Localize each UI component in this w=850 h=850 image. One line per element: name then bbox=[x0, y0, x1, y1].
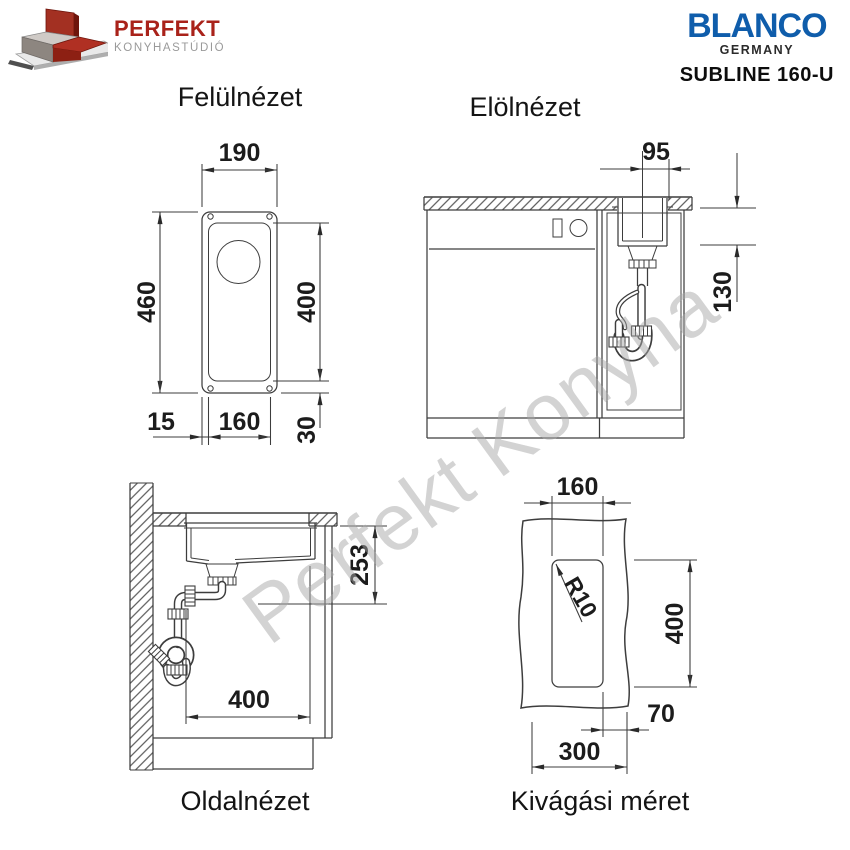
title-cutout-view: Kivágási méret bbox=[455, 786, 745, 817]
dim-label-outer-width: 190 bbox=[219, 139, 261, 167]
title-top-view: Felülnézet bbox=[120, 82, 360, 113]
sink-bowl-side bbox=[184, 523, 317, 585]
countertop-side bbox=[153, 513, 337, 526]
perfekt-logo: PERFEKT KONYHASTÚDIÓ bbox=[8, 4, 225, 70]
title-front-view: Elölnézet bbox=[405, 92, 645, 123]
spec-sheet: PERFEKT KONYHASTÚDIÓ BLANCO GERMANY SUBL… bbox=[0, 0, 850, 850]
dim-label-bowl-depth: 130 bbox=[709, 271, 737, 313]
dim-label-cutout-width: 160 bbox=[557, 473, 599, 501]
worktop-slab bbox=[519, 519, 629, 708]
perfekt-subtitle: KONYHASTÚDIÓ bbox=[114, 42, 225, 54]
dim-label-edge-margin: 15 bbox=[147, 408, 175, 436]
dim-label-side-bowl-length: 400 bbox=[228, 686, 270, 714]
cutout-view-drawing: R10 160 400 70 300 bbox=[460, 470, 710, 780]
dim-label-bowl-length: 400 bbox=[293, 281, 321, 323]
dim-label-end-margin: 30 bbox=[293, 416, 321, 444]
blanco-brand: BLANCO bbox=[687, 10, 826, 42]
dim-label-front-offset: 70 bbox=[647, 700, 675, 728]
perfekt-brand: PERFEKT bbox=[114, 18, 225, 40]
countertop-front bbox=[424, 197, 692, 210]
perfekt-kitchen-icon bbox=[8, 4, 108, 70]
dim-label-drain-height: 253 bbox=[346, 544, 374, 586]
drain-trap-side bbox=[148, 585, 222, 682]
dim-label-cutout-length: 400 bbox=[661, 603, 689, 645]
side-view-drawing: 253 400 bbox=[100, 470, 400, 800]
blanco-logo: BLANCO GERMANY SUBLINE 160-U bbox=[680, 10, 834, 87]
blanco-country: GERMANY bbox=[720, 43, 794, 57]
dim-label-bowl-width: 160 bbox=[219, 408, 261, 436]
dim-label-outer-length: 460 bbox=[133, 281, 161, 323]
product-model: SUBLINE 160-U bbox=[680, 64, 834, 87]
front-view-drawing: 95 130 bbox=[420, 130, 770, 460]
wall-side bbox=[130, 483, 153, 770]
dim-label-center-to-edge: 95 bbox=[642, 138, 670, 166]
dim-label-min-width: 300 bbox=[559, 738, 601, 766]
top-view-drawing: 190 460 400 30 15 160 bbox=[120, 130, 360, 460]
sink-outline-top bbox=[202, 212, 277, 393]
drain-trap-front bbox=[609, 288, 652, 356]
